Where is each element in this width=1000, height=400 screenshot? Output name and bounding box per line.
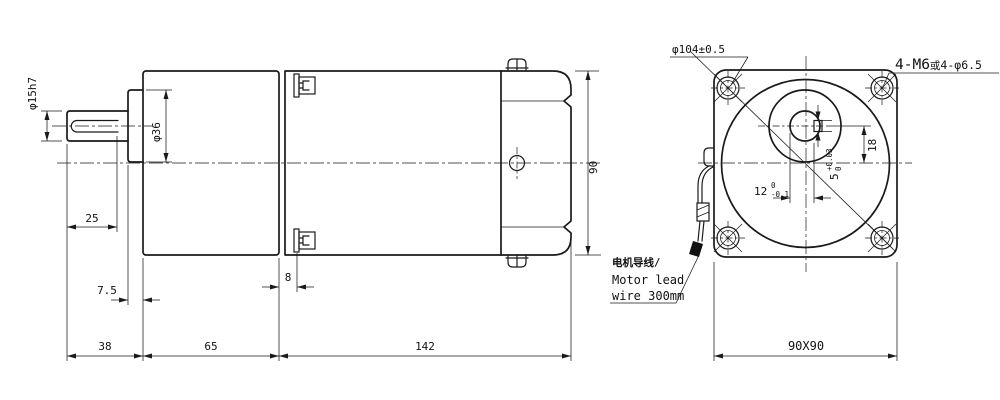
dim-boss-protrusion: 7.5 xyxy=(97,284,117,297)
square-size-value: 90X90 xyxy=(788,339,824,353)
side-view: φ15h7 φ36 25 7.5 8 xyxy=(26,59,603,361)
label-mount-holes: 4-M6或4-φ6.5 xyxy=(883,57,999,87)
motor-lead-wire xyxy=(689,148,714,257)
keyway-depth-lower: -0.1 xyxy=(771,190,789,199)
corner-hole-bottom-right xyxy=(865,221,899,255)
dim-gearbox-length: 65 xyxy=(204,340,217,353)
dim-body-height: 90 xyxy=(587,161,600,174)
rear-screw-bottom xyxy=(506,256,528,267)
wire-note-line2: Motor lead xyxy=(612,273,684,287)
rear-screw-top xyxy=(506,59,528,70)
dim-shaft-diameter: φ15h7 xyxy=(26,77,39,110)
junction-screw-bottom xyxy=(294,229,315,252)
corner-hole-bottom-left xyxy=(711,221,745,255)
dim-keyway-length: 25 xyxy=(85,212,98,225)
label-bolt-circle: φ104±0.5 xyxy=(670,43,748,85)
keyway-depth-upper: 0 xyxy=(771,181,776,190)
mount-holes-size: 4-M6 xyxy=(895,57,930,73)
mount-holes-alt: 4-φ6.5 xyxy=(940,58,982,72)
drawing-canvas: φ15h7 φ36 25 7.5 8 xyxy=(0,0,1000,400)
side-dimensions: φ15h7 φ36 25 7.5 8 xyxy=(26,71,601,361)
corner-hole-top-left xyxy=(711,71,745,105)
keyway-width-lower: 0 xyxy=(834,166,843,171)
junction-screw-top xyxy=(294,74,315,97)
wire-note-cn: 电机导线/ xyxy=(612,256,660,269)
keyway-width-main: 5 xyxy=(828,173,841,180)
dim-square-size: 90X90 xyxy=(714,262,897,361)
wire-note-line3: wire 300mm xyxy=(612,289,684,303)
keyway-width-upper: +0.03 xyxy=(825,148,834,171)
dim-shaft-extension: 38 xyxy=(98,340,111,353)
front-view: φ104±0.5 4-M6或4-φ6.5 12 0 -0.1 xyxy=(610,43,999,361)
wire-terminal xyxy=(689,241,703,257)
shaft-offset-value: 18 xyxy=(866,139,879,152)
wire-note: 电机导线/ Motor lead wire 300mm xyxy=(610,255,699,303)
corner-hole-top-right xyxy=(865,71,899,105)
side-centerlines xyxy=(52,126,603,179)
dim-keyway-depth: 12 0 -0.1 xyxy=(754,133,831,203)
keyway-depth-main: 12 xyxy=(754,185,767,198)
svg-text:4-M6或4-φ6.5: 4-M6或4-φ6.5 xyxy=(895,57,982,73)
dim-boss-diameter: φ36 xyxy=(150,122,163,142)
motor-dimensional-drawing: φ15h7 φ36 25 7.5 8 xyxy=(0,0,1000,400)
mount-holes-or: 或 xyxy=(930,60,941,72)
dim-flange-depth: 8 xyxy=(285,271,292,284)
dim-bolt-circle: φ104±0.5 xyxy=(672,43,725,56)
dim-motor-length: 142 xyxy=(415,340,435,353)
